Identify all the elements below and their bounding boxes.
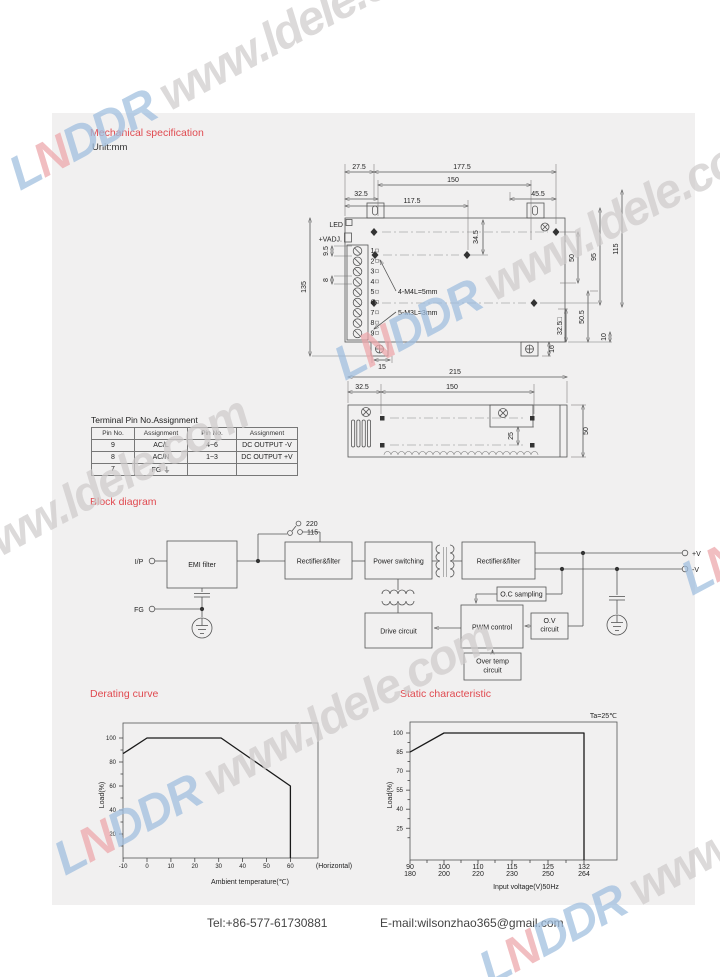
y-axis-title: Load(%) (387, 782, 394, 808)
table-row: 7FG ⏚ (92, 464, 298, 476)
dim-label: 15 (378, 364, 386, 371)
out-neg-label: -V (692, 567, 699, 574)
switch-115-label: 115 (307, 530, 318, 537)
static-title: Static characteristic (400, 688, 491, 700)
block-diagram: EMI filter Rectifier&filter Power switch… (134, 521, 701, 680)
y-tick-label: 85 (396, 750, 403, 756)
vent-slot (357, 420, 360, 447)
x-tick-label: 180 (404, 871, 416, 878)
vent-scallops (384, 452, 538, 456)
pwm-label: PWM control (472, 625, 513, 632)
table-cell: 1~3 (188, 452, 237, 464)
x-tick-label: 10 (168, 864, 175, 870)
dim-label: 50 (569, 254, 576, 262)
transformer-coil (382, 590, 414, 594)
table-cell: AC/N (135, 452, 188, 464)
dim-label: 50.5 (579, 310, 586, 324)
table-cell: DC OUTPUT +V (237, 452, 298, 464)
table-cell: DC OUTPUT -V (237, 440, 298, 452)
x-tick-label: -10 (119, 864, 128, 870)
table-cell: 4~6 (188, 440, 237, 452)
y-tick-label: 100 (106, 736, 117, 742)
dim-label: 8 (323, 278, 330, 282)
dim-label: 135 (301, 281, 308, 293)
dim-label: 215 (449, 369, 461, 376)
footer-tel: Tel:+86-577-61730881 (207, 916, 327, 930)
dim-label: 32.5□ (557, 316, 564, 335)
y-tick-label: 55 (396, 788, 403, 794)
static-curve (410, 733, 584, 860)
static-chart: 9018010020011022011523012525013226425405… (387, 713, 617, 891)
x-tick-label: 40 (239, 864, 246, 870)
x-tick-label: 200 (438, 871, 450, 878)
x-tick-label: 90 (406, 864, 414, 871)
x-axis-title: Input voltage(V)50Hz (493, 884, 559, 891)
rectifier1-label: Rectifier&filter (297, 559, 341, 566)
mounting-hole-icon (464, 251, 471, 259)
overtemp-label-1: Over temp (476, 659, 509, 666)
power-switching-label: Power switching (373, 559, 424, 566)
y-tick-label: 40 (396, 807, 403, 813)
derating-curve (123, 738, 290, 858)
mounting-hole-icon (531, 299, 538, 307)
leader-line (380, 260, 396, 291)
overtemp-label-2: circuit (483, 668, 501, 675)
input-label: I/P (135, 559, 144, 566)
mounting-hole-icon (371, 228, 378, 236)
block-diagram-title: Block diagram (90, 496, 157, 508)
terminal-table-block: Terminal Pin No.Assignment Pin No.Assign… (91, 415, 298, 476)
pin-number: 7 (371, 310, 375, 317)
dim-label: 27.5 (352, 164, 366, 171)
table-cell: 8 (92, 452, 135, 464)
vent-slot (367, 420, 370, 447)
table-cell: 9 (92, 440, 135, 452)
pin-number: 1 (371, 248, 375, 255)
footer-email: E-mail:wilsonzhao365@gmail.com (380, 916, 564, 930)
out-pos-label: +V (692, 551, 701, 558)
dim-label: 45.5 (531, 191, 545, 198)
table-cell: FG ⏚ (135, 464, 188, 476)
dim-label: 50 (583, 427, 590, 435)
y-tick-label: 60 (109, 784, 116, 790)
x-tick-label: 264 (578, 871, 590, 878)
x-tick-label: 125 (542, 864, 554, 871)
table-cell (237, 464, 298, 476)
y-tick-label: 20 (109, 832, 116, 838)
dim-label: 16 (549, 345, 556, 353)
y-tick-label: 25 (396, 826, 403, 832)
x-tick-label: 132 (578, 864, 590, 871)
drive-label: Drive circuit (380, 629, 417, 636)
mechanical-title: Mechanical specification (90, 127, 204, 139)
x-tick-label: 60 (287, 864, 294, 870)
terminal-pin-table: Pin No.AssignmentPin No.Assignment9AC/L4… (91, 427, 298, 476)
x-tick-label: 115 (506, 864, 517, 871)
ta-annotation: Ta=25℃ (590, 713, 617, 720)
dim-label: 9.5 (323, 246, 330, 256)
dim-label: 10 (601, 333, 608, 341)
table-header: Pin No. (188, 428, 237, 440)
ov-label-1: O.V (543, 618, 555, 625)
table-cell: AC/L (135, 440, 188, 452)
dim-label: 150 (446, 384, 458, 391)
unit-label: Unit:mm (92, 142, 127, 153)
x-tick-label: 50 (263, 864, 270, 870)
table-header: Assignment (237, 428, 298, 440)
vent-slot (352, 420, 355, 447)
x-tick-label: 30 (215, 864, 222, 870)
m4-annotation: 4-M4L=5mm (398, 289, 438, 296)
derating-title: Derating curve (90, 688, 158, 700)
y-tick-label: 70 (396, 769, 403, 775)
x-tick-label: 20 (191, 864, 198, 870)
dim-label: 95 (591, 253, 598, 261)
led-label: LED (329, 222, 343, 229)
x-axis-title: Ambient temperature(℃) (211, 879, 289, 886)
dim-label: 32.5 (355, 384, 369, 391)
pin-number: 4 (371, 279, 375, 286)
vent-slot (362, 420, 365, 447)
emi-filter-label: EMI filter (188, 562, 216, 569)
x-tick-label: 230 (506, 871, 518, 878)
x-tick-label: 0 (145, 864, 149, 870)
switch-220-label: 220 (306, 521, 318, 528)
pin-number: 5 (371, 289, 375, 296)
pin-number: 6 (371, 300, 375, 307)
x-extra-label: (Horizontal) (316, 863, 352, 870)
pin-number: 9 (371, 330, 375, 337)
table-cell: 7 (92, 464, 135, 476)
ov-label-2: circuit (540, 627, 558, 634)
dim-label: 25 (508, 432, 515, 440)
mounting-hole-icon (553, 228, 560, 236)
x-tick-label: 250 (542, 871, 554, 878)
fg-label: FG (134, 607, 144, 614)
x-tick-label: 110 (472, 864, 483, 871)
derating-chart: -100102030405060(Horizontal)20406080100A… (99, 723, 352, 886)
dim-label: 177.5 (453, 164, 471, 171)
y-tick-label: 100 (393, 731, 404, 737)
x-tick-label: 100 (438, 864, 450, 871)
pin-number: 3 (371, 269, 375, 276)
pin-number: 8 (371, 320, 375, 327)
datasheet-page: Mechanical specification Unit:mm Block d… (0, 0, 720, 977)
table-header: Pin No. (92, 428, 135, 440)
oc-sampling-label: O.C sampling (500, 592, 543, 599)
terminal-table-title: Terminal Pin No.Assignment (91, 415, 298, 425)
x-tick-label: 220 (472, 871, 484, 878)
pin-number: 2 (371, 258, 375, 265)
dim-label: 150 (447, 177, 459, 184)
rectifier2-label: Rectifier&filter (477, 559, 521, 566)
m3-annotation: 5-M3L=3mm (398, 310, 438, 317)
dim-label: 117.5 (404, 198, 421, 205)
dim-label: 115 (613, 243, 620, 254)
y-tick-label: 80 (109, 760, 116, 766)
table-header: Assignment (135, 428, 188, 440)
y-axis-title: Load(%) (99, 782, 106, 808)
table-row: 8AC/N1~3DC OUTPUT +V (92, 452, 298, 464)
y-tick-label: 40 (109, 808, 116, 814)
table-cell (188, 464, 237, 476)
leader-line (374, 312, 396, 329)
dim-label: 32.5 (354, 191, 368, 198)
vadj-label: +VADJ. (319, 237, 342, 244)
table-row: 9AC/L4~6DC OUTPUT -V (92, 440, 298, 452)
